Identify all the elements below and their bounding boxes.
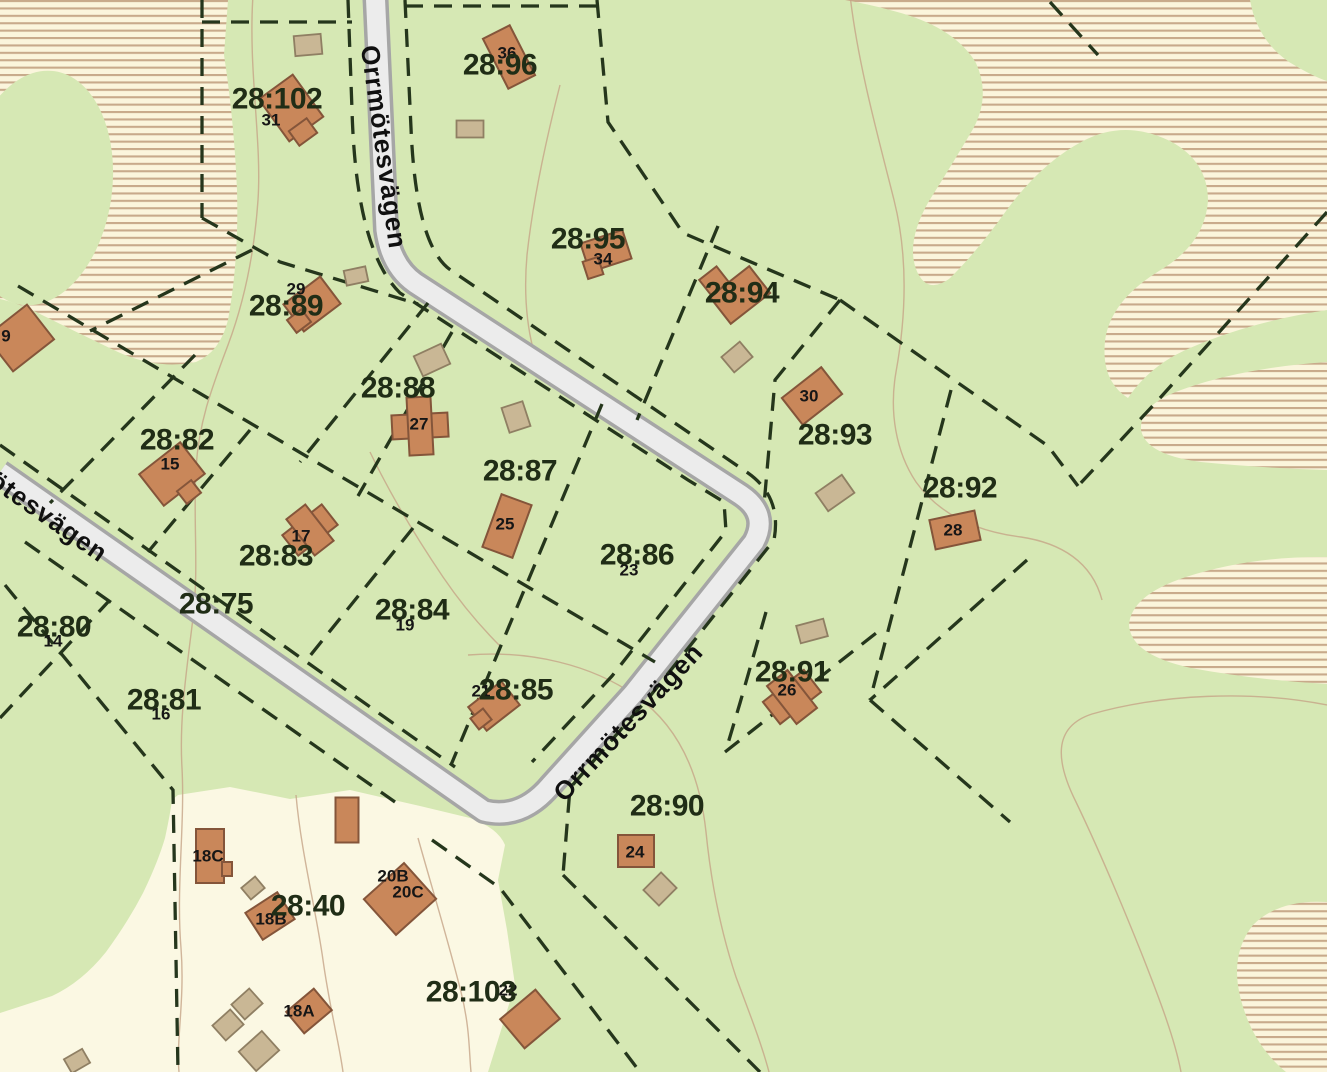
shed [457,121,484,138]
parcel-label: 28:86 [600,539,674,572]
parcel-label: 28:102 [232,83,322,116]
address-number: 18A [283,1002,314,1021]
address-number: 15 [161,455,180,474]
address-number: 18C [192,847,223,866]
address-number: 24 [626,843,645,862]
parcel-label: 28:87 [483,455,557,488]
parcel-label: 28:88 [361,372,435,405]
parcel-label: 28:93 [798,419,872,452]
parcel-label: 28:90 [630,790,704,823]
address-number: 9 [1,327,10,346]
address-number: 25 [496,515,515,534]
parcel-label: 28:84 [375,594,450,627]
parcel-label: 28:80 [17,611,91,644]
cadastral-map-viewport[interactable]: 31363429272523151719141621302826242218C1… [0,0,1327,1072]
address-number: 28 [944,521,963,540]
parcel-label: 28:40 [271,890,345,923]
parcel-label: 28:81 [127,684,201,717]
address-number: 27 [410,415,429,434]
parcel-label: 28:75 [179,588,253,621]
parcel-label: 28:89 [249,290,323,323]
parcel-label: 28:96 [463,49,537,82]
parcel-label: 28:103 [426,976,516,1009]
map-canvas: 31363429272523151719141621302826242218C1… [0,0,1327,1072]
shed [294,34,323,56]
parcel-label: 28:92 [923,472,997,505]
parcel-label: 28:91 [755,656,829,689]
parcel-label: 28:83 [239,540,313,573]
address-number: 20C [392,883,423,902]
parcel-label: 28:82 [140,424,214,457]
address-number: 30 [800,387,819,406]
building [336,798,359,843]
parcel-label: 28:85 [479,674,553,707]
shed [344,266,369,285]
parcel-label: 28:95 [551,223,625,256]
parcel-label: 28:94 [705,277,780,310]
